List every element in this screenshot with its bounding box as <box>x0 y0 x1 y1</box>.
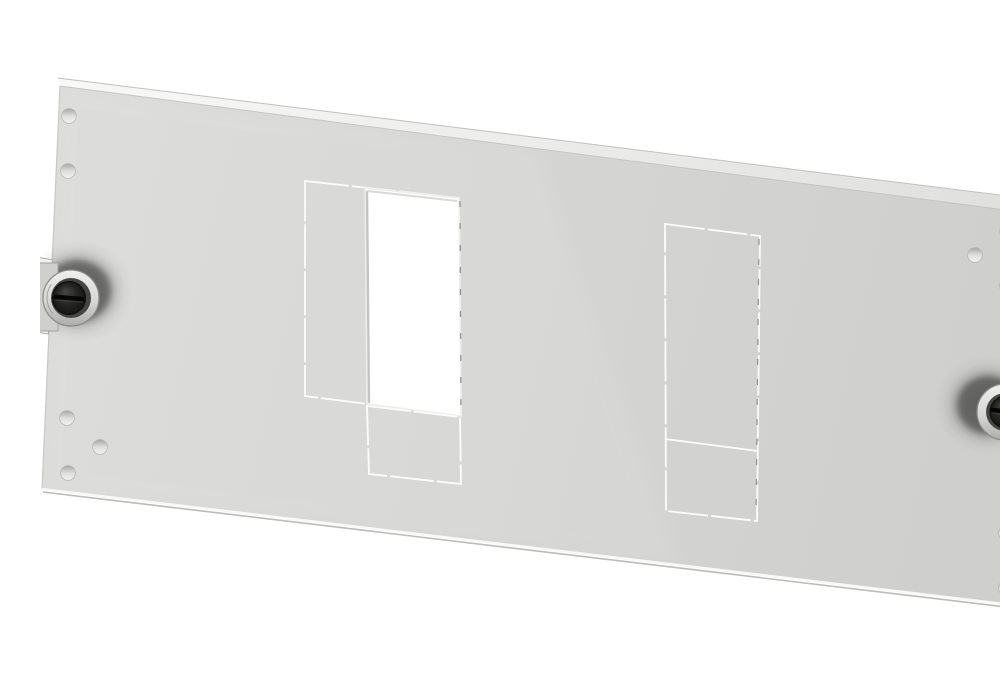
mounting-hole <box>62 109 77 124</box>
mounting-hole <box>968 248 983 263</box>
left-open-aperture <box>365 188 461 416</box>
front-panel-illustration <box>40 16 1000 682</box>
mounting-hole <box>93 440 108 455</box>
mounting-hole <box>60 411 75 426</box>
product-photo <box>40 16 1000 682</box>
mounting-hole <box>61 164 76 179</box>
mounting-hole <box>61 466 76 481</box>
left-lock-screw-slot <box>56 297 82 299</box>
